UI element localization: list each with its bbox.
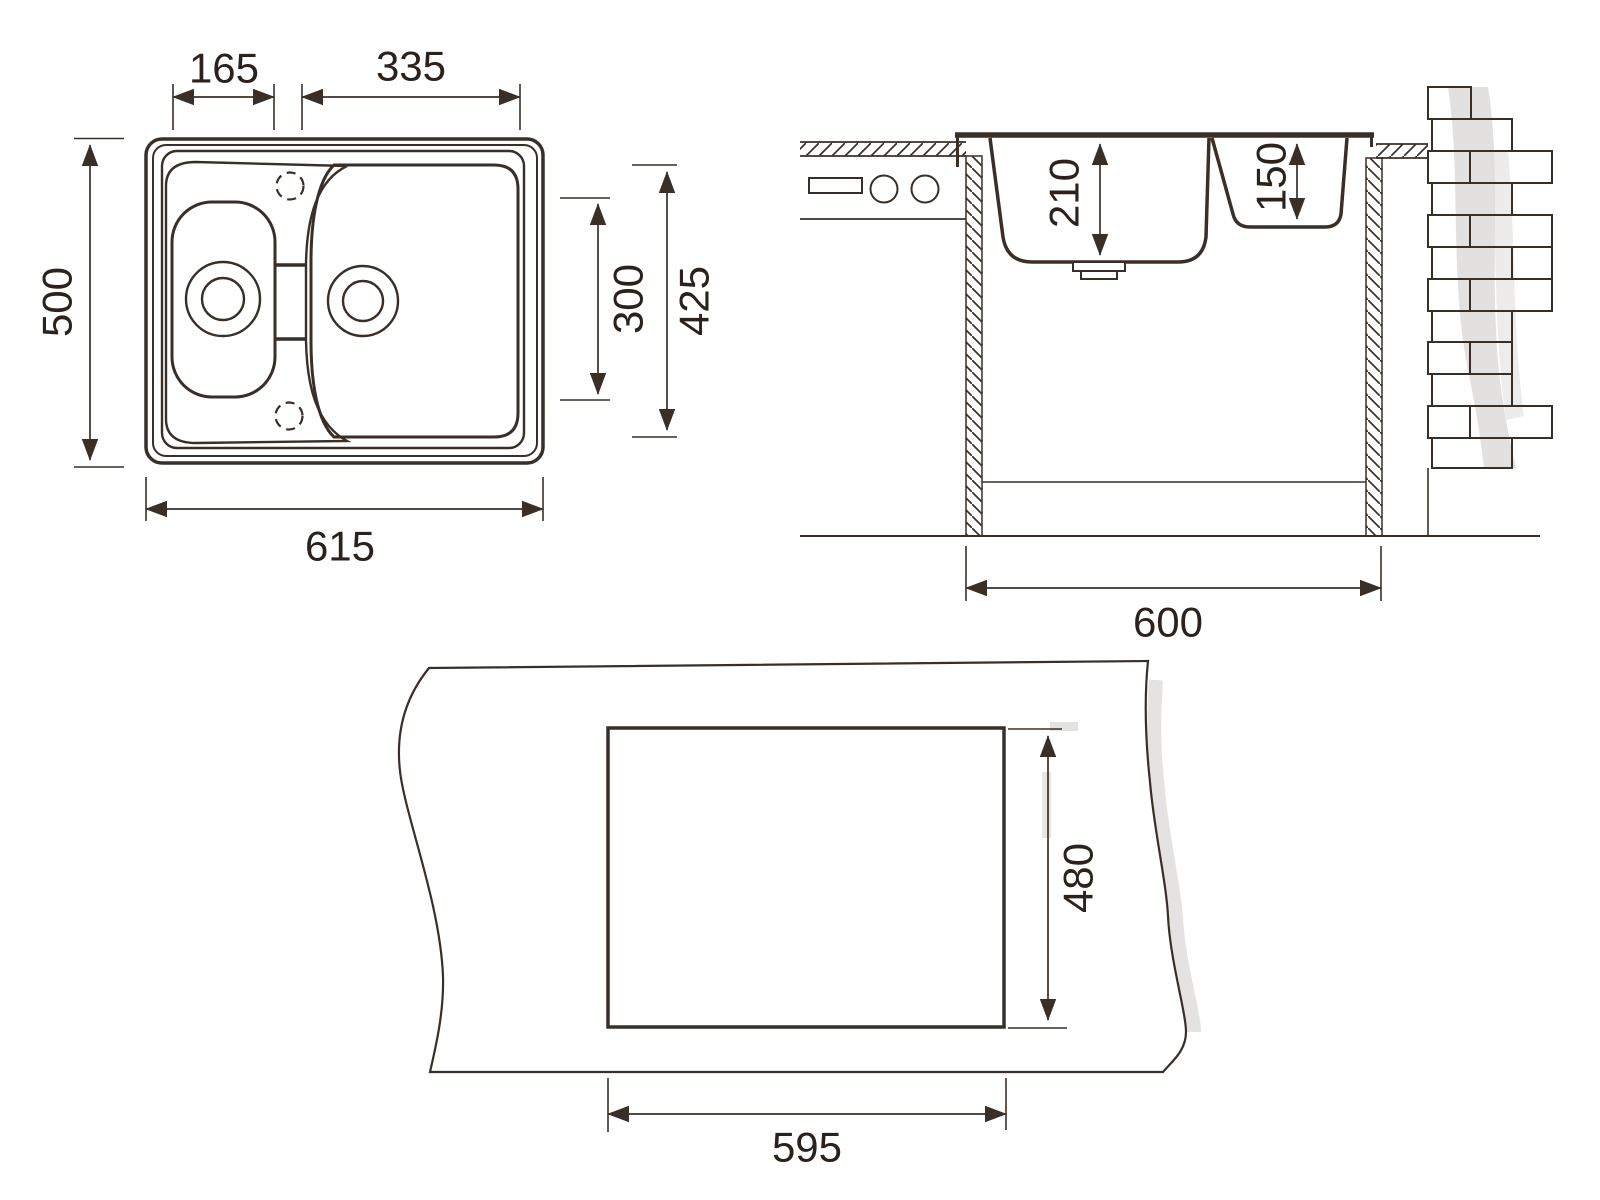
dim-label-600: 600 [1133,599,1203,646]
sink-rim-line [153,145,537,456]
shadow-artifact [1042,772,1051,838]
sink-top-view: 165 335 500 615 300 [34,43,718,570]
dim-label-165: 165 [189,45,259,92]
dimension-cutout-depth: 480 [1008,729,1102,1028]
dimension-overall-depth: 500 [34,139,125,468]
dimension-small-bowl-width: 165 [173,45,274,131]
worktop-cutout-view: 480 595 [399,661,1194,1171]
dim-label-500: 500 [34,267,81,337]
sink-technical-drawing: 165 335 500 615 300 [0,0,1600,1200]
drain-flange [1073,262,1125,271]
brick [1428,342,1470,374]
tap-hole-bottom [276,403,303,430]
dim-label-595: 595 [772,1124,842,1171]
cabinet-wall-left [966,156,982,536]
dim-label-615: 615 [305,523,375,570]
brick [1428,406,1470,438]
dim-label-335: 335 [376,43,446,90]
dim-label-150: 150 [1248,142,1295,212]
worktop-left [800,142,966,156]
cabinet-wall-right [1366,158,1382,536]
drawer-handle [809,178,862,193]
dim-label-210: 210 [1041,158,1088,228]
cabinet-front [800,176,966,220]
dimension-cutout-width: 595 [608,1078,1006,1171]
dimension-bowl-inner-depth: 300 [560,198,652,400]
brick [1512,247,1552,279]
knob-right [912,176,939,203]
sink-section-view: 210 150 600 [800,87,1552,646]
drain-outlet [1081,271,1117,279]
worktop-hatch [800,142,966,156]
main-bowl-drain-outer [328,266,398,336]
dimension-overall-width: 615 [146,477,543,570]
drawing-canvas: 165 335 500 615 300 [0,0,1600,1200]
dimension-cabinet-width: 600 [966,546,1381,646]
main-bowl-drain-inner [343,281,383,321]
dim-label-425: 425 [671,266,718,336]
dimension-small-bowl-depth: 150 [1248,142,1298,219]
tap-hole-top [277,173,304,200]
worktop-hatch [1376,144,1428,158]
dim-label-300: 300 [605,264,652,334]
worktop-right [1376,144,1428,158]
small-bowl-drain-inner [202,278,244,320]
small-bowl-area-outline [166,162,347,443]
knob-left [871,176,898,203]
cutout-rectangle [608,728,1004,1027]
dimension-main-bowl-width: 335 [302,43,520,131]
dim-label-480: 480 [1055,843,1102,913]
sink-outer-edge [146,139,543,463]
small-bowl-drain-outer [186,262,260,336]
dimension-main-bowl-depth: 210 [1041,144,1101,255]
